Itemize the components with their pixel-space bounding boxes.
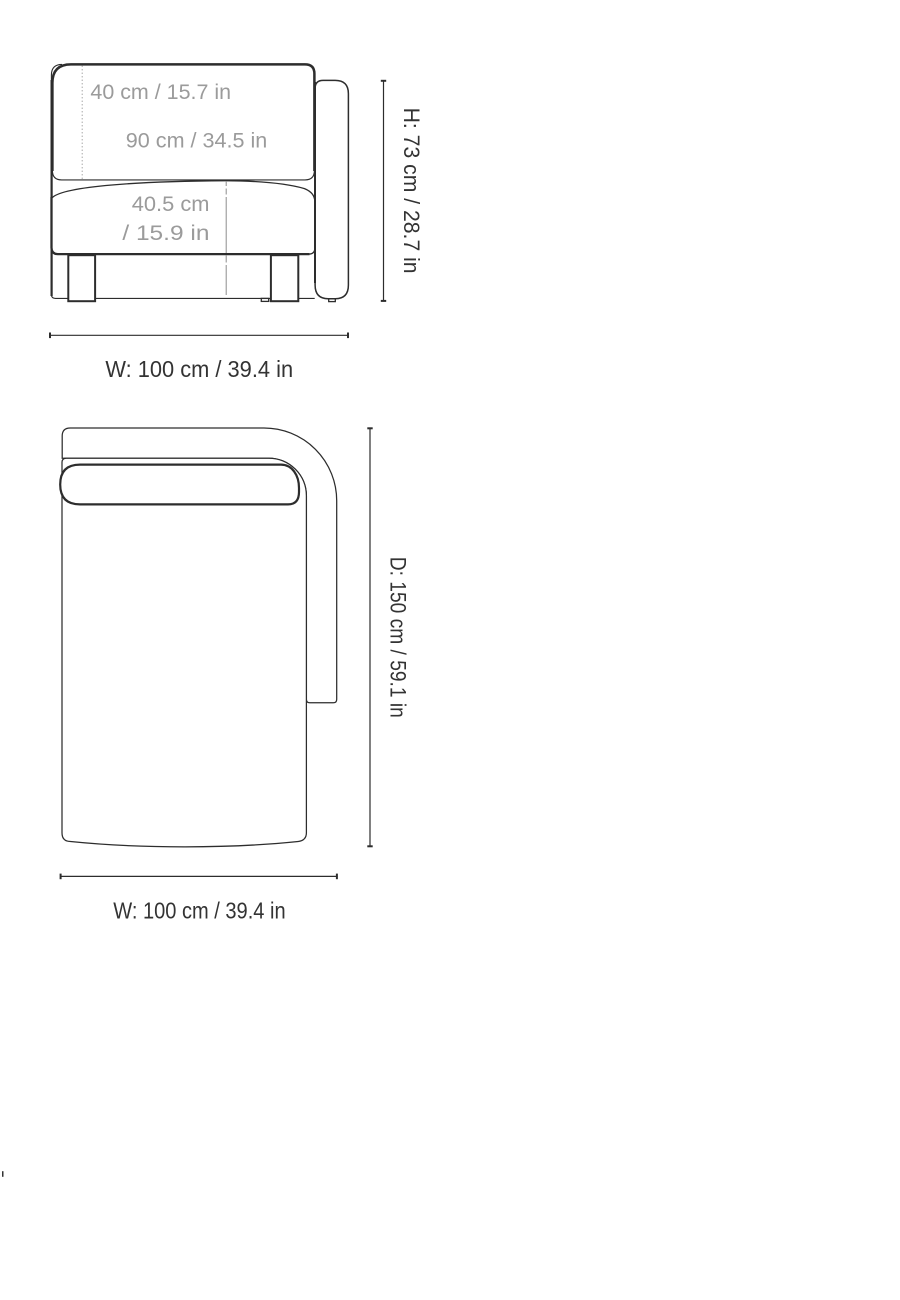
svg-text:/ 15.9 in: / 15.9 in	[122, 222, 209, 245]
svg-text:W: 100 cm / 39.4 in: W: 100 cm / 39.4 in	[113, 898, 285, 924]
svg-text:40 cm / 15.7 in: 40 cm / 15.7 in	[90, 81, 231, 104]
svg-text:40.5 cm: 40.5 cm	[132, 193, 210, 216]
svg-text:D: 150 cm / 59.1 in: D: 150 cm / 59.1 in	[386, 557, 411, 718]
svg-text:H: 73 cm / 28.7 in: H: 73 cm / 28.7 in	[399, 108, 424, 274]
svg-text:90 cm / 34.5 in: 90 cm / 34.5 in	[126, 129, 267, 152]
svg-text:W: 100 cm / 39.4 in: W: 100 cm / 39.4 in	[105, 356, 293, 382]
